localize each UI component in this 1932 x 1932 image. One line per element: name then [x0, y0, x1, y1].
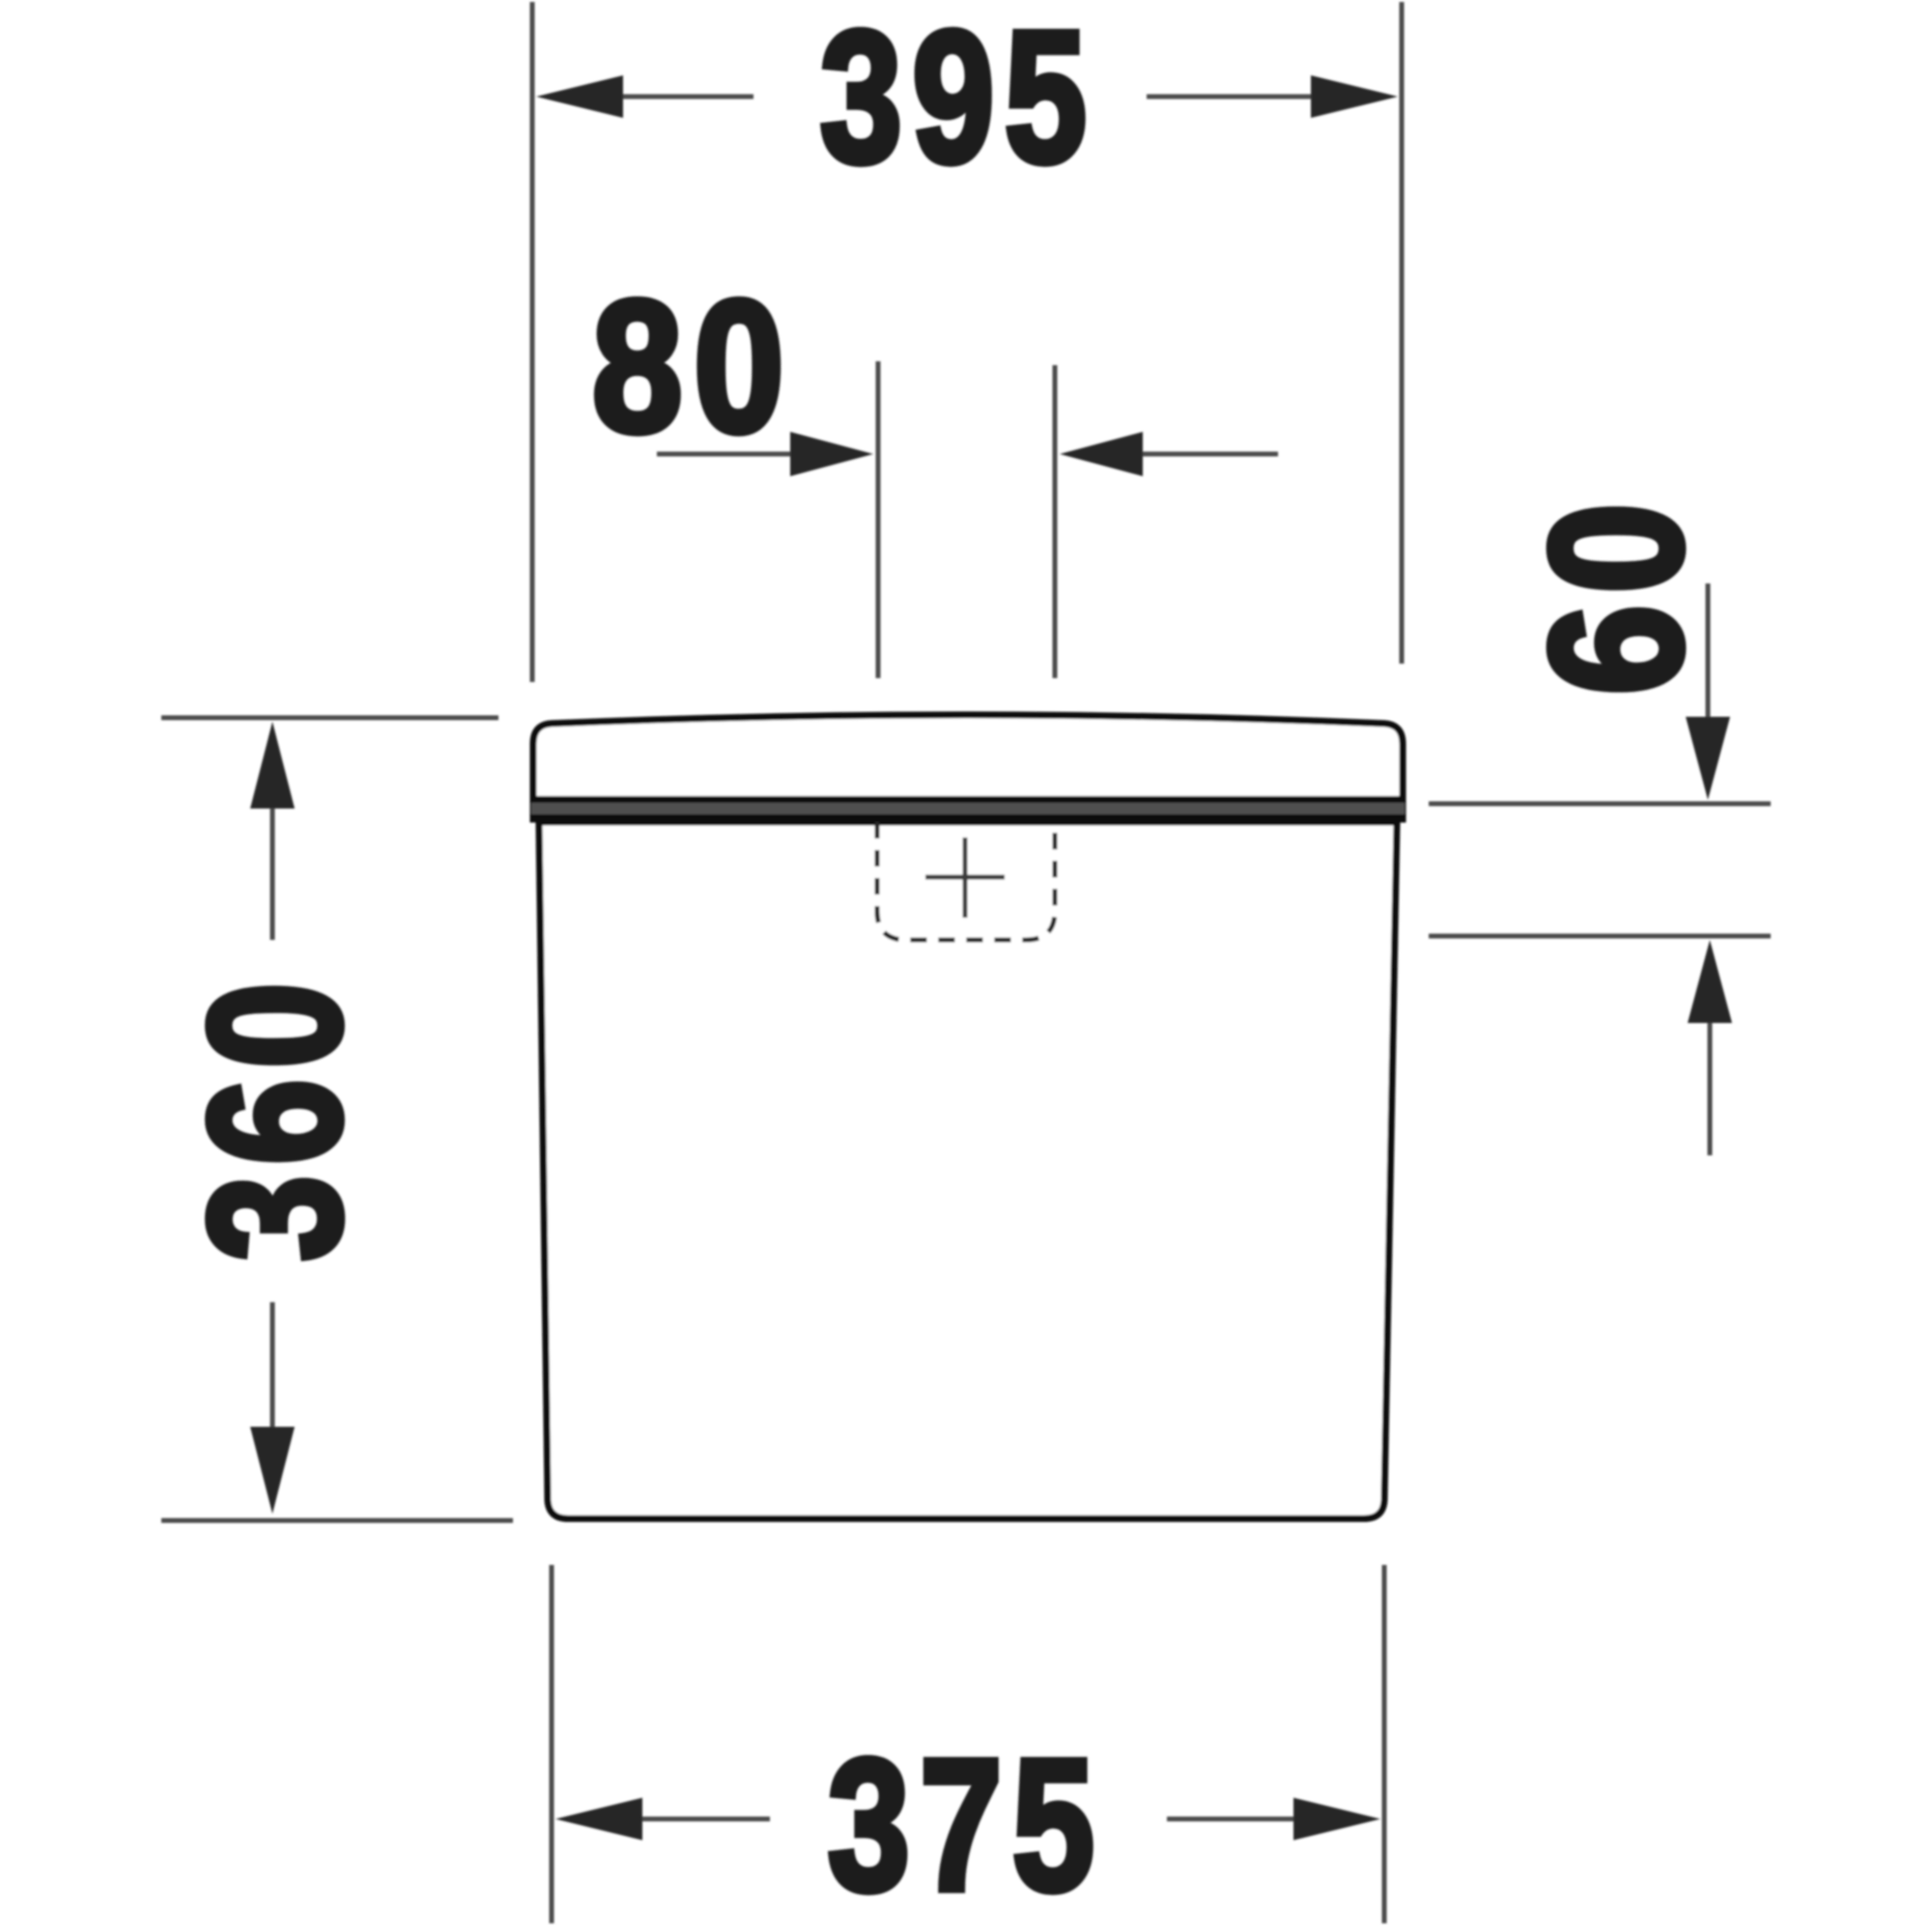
svg-text:60: 60 — [1511, 492, 1721, 695]
svg-text:360: 360 — [170, 972, 380, 1262]
svg-text:395: 395 — [820, 0, 1097, 202]
svg-text:375: 375 — [828, 1721, 1105, 1930]
svg-text:80: 80 — [592, 261, 795, 471]
